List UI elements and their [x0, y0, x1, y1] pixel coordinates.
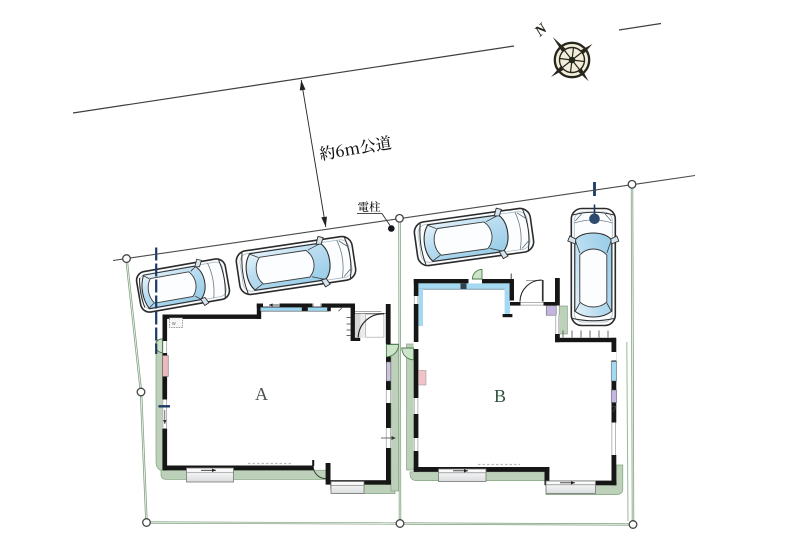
svg-text:B: B — [494, 386, 506, 406]
svg-text:w: w — [172, 321, 176, 327]
svg-text:A: A — [255, 384, 268, 404]
